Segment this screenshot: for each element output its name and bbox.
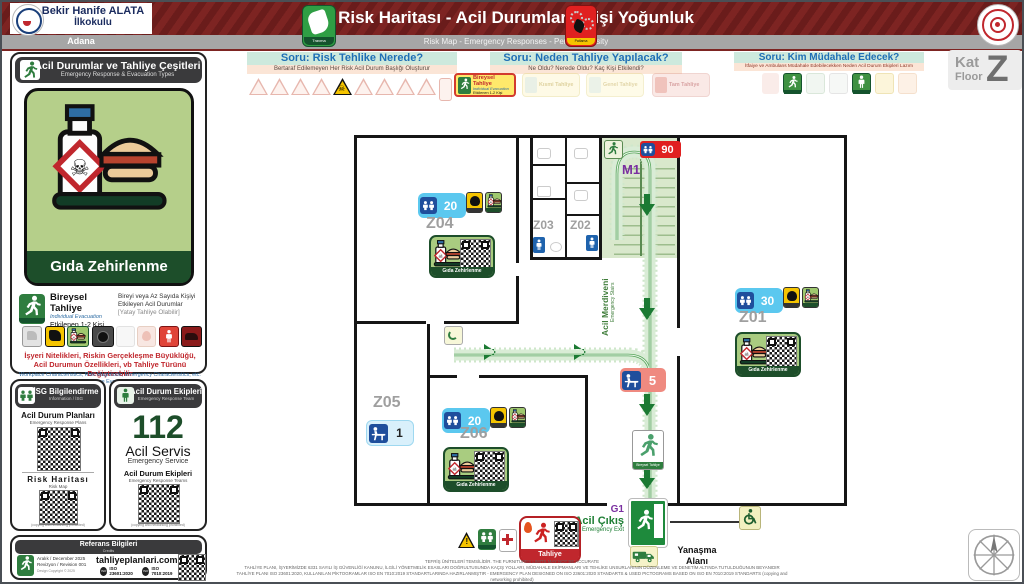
travma-icon: Travma [302, 5, 336, 47]
footer-disclaimer: TEFRİŞ ÜNİTELERİ TEMSİLİDİR. THE FURNITU… [232, 559, 792, 583]
sticker-qr-code [474, 451, 505, 483]
sticker-qr-code [460, 239, 491, 270]
wall [677, 356, 680, 506]
wc-fixture [550, 242, 562, 252]
z06-hazard-sticker: Gıda Zehirlenme [443, 447, 509, 492]
people-icon [737, 292, 754, 309]
wall [585, 375, 588, 506]
wall [530, 257, 602, 260]
dock-line [670, 521, 742, 523]
room-label-z06: Z06 [460, 425, 488, 443]
tahliye-qr-code [554, 521, 579, 547]
wc-fixture [537, 148, 551, 159]
wc-fixture [574, 190, 588, 201]
z05-density-badge: 1 [366, 420, 414, 446]
ministry-logo [977, 4, 1019, 46]
room-label-z02: Z02 [570, 218, 591, 232]
darkness-hazard-icon [783, 287, 800, 308]
z04-hazard-sticker: Gıda Zehirlenme [429, 235, 495, 278]
sticker-qr-code [766, 336, 797, 368]
food-poisoning-mini-icon [485, 192, 502, 213]
wall [677, 260, 680, 328]
room-label-z04: Z04 [426, 215, 454, 233]
door-swing-icon [444, 326, 463, 345]
exit-id: G1 [544, 504, 624, 515]
stairs-density-badge: 90 [640, 141, 681, 158]
wall [479, 375, 588, 378]
room-label-z01: Z01 [739, 309, 767, 327]
wc-male-icon [533, 237, 545, 253]
z01-hazard-sticker: Gıda Zehirlenme [735, 332, 801, 377]
stairs-label-tr: Acil Merdiveni [600, 256, 610, 336]
evacuation-runner-icon [529, 521, 553, 545]
wc-female-icon [586, 235, 598, 251]
darkness-hazard-icon [490, 407, 507, 428]
wall [354, 321, 426, 324]
corridor-density-badge: 5 [620, 368, 666, 392]
stairs-id-label: M1 [622, 162, 640, 177]
desk-person-icon [622, 371, 641, 390]
wall [530, 198, 567, 200]
wall [567, 214, 601, 216]
darkness-hazard-icon [466, 192, 483, 213]
food-poisoning-mini-icon [509, 407, 526, 428]
wall [427, 375, 457, 378]
wall [844, 135, 847, 506]
wall [599, 135, 602, 260]
wheelchair-icon [739, 506, 761, 530]
assembly-point-icon [478, 529, 496, 550]
wall [565, 135, 567, 257]
wc-fixture [574, 148, 588, 159]
desk-person-icon [369, 424, 388, 443]
compass-icon [968, 529, 1020, 581]
room-label-z03: Z03 [533, 218, 554, 232]
stairs-sign-icon [604, 140, 623, 159]
school-logo [12, 4, 44, 36]
wall [516, 135, 519, 263]
food-poisoning-mini-icon [802, 287, 819, 308]
wall [427, 324, 430, 506]
people-icon [444, 412, 461, 429]
wall [516, 276, 519, 324]
wall [530, 164, 567, 166]
patlama-icon: Patlama [565, 5, 597, 47]
individual-evacuation-sign: Bireysel Tahliye [632, 430, 664, 470]
wc-fixture [537, 186, 551, 197]
people-icon [420, 197, 437, 214]
stairs-label-en: Emergency Stairs [610, 252, 616, 322]
wall [444, 321, 519, 324]
tahliye-sticker: Tahliye [519, 516, 581, 563]
risk-map-poster: Bekir Hanife ALATA İlkokulu Adana Travma… [0, 0, 1024, 584]
first-aid-icon [499, 529, 517, 552]
stairs-people-icon [641, 143, 655, 156]
escape-route [2, 2, 1024, 584]
emergency-exit-sign [629, 499, 667, 547]
wall [567, 182, 601, 184]
room-label-z05: Z05 [373, 394, 401, 412]
